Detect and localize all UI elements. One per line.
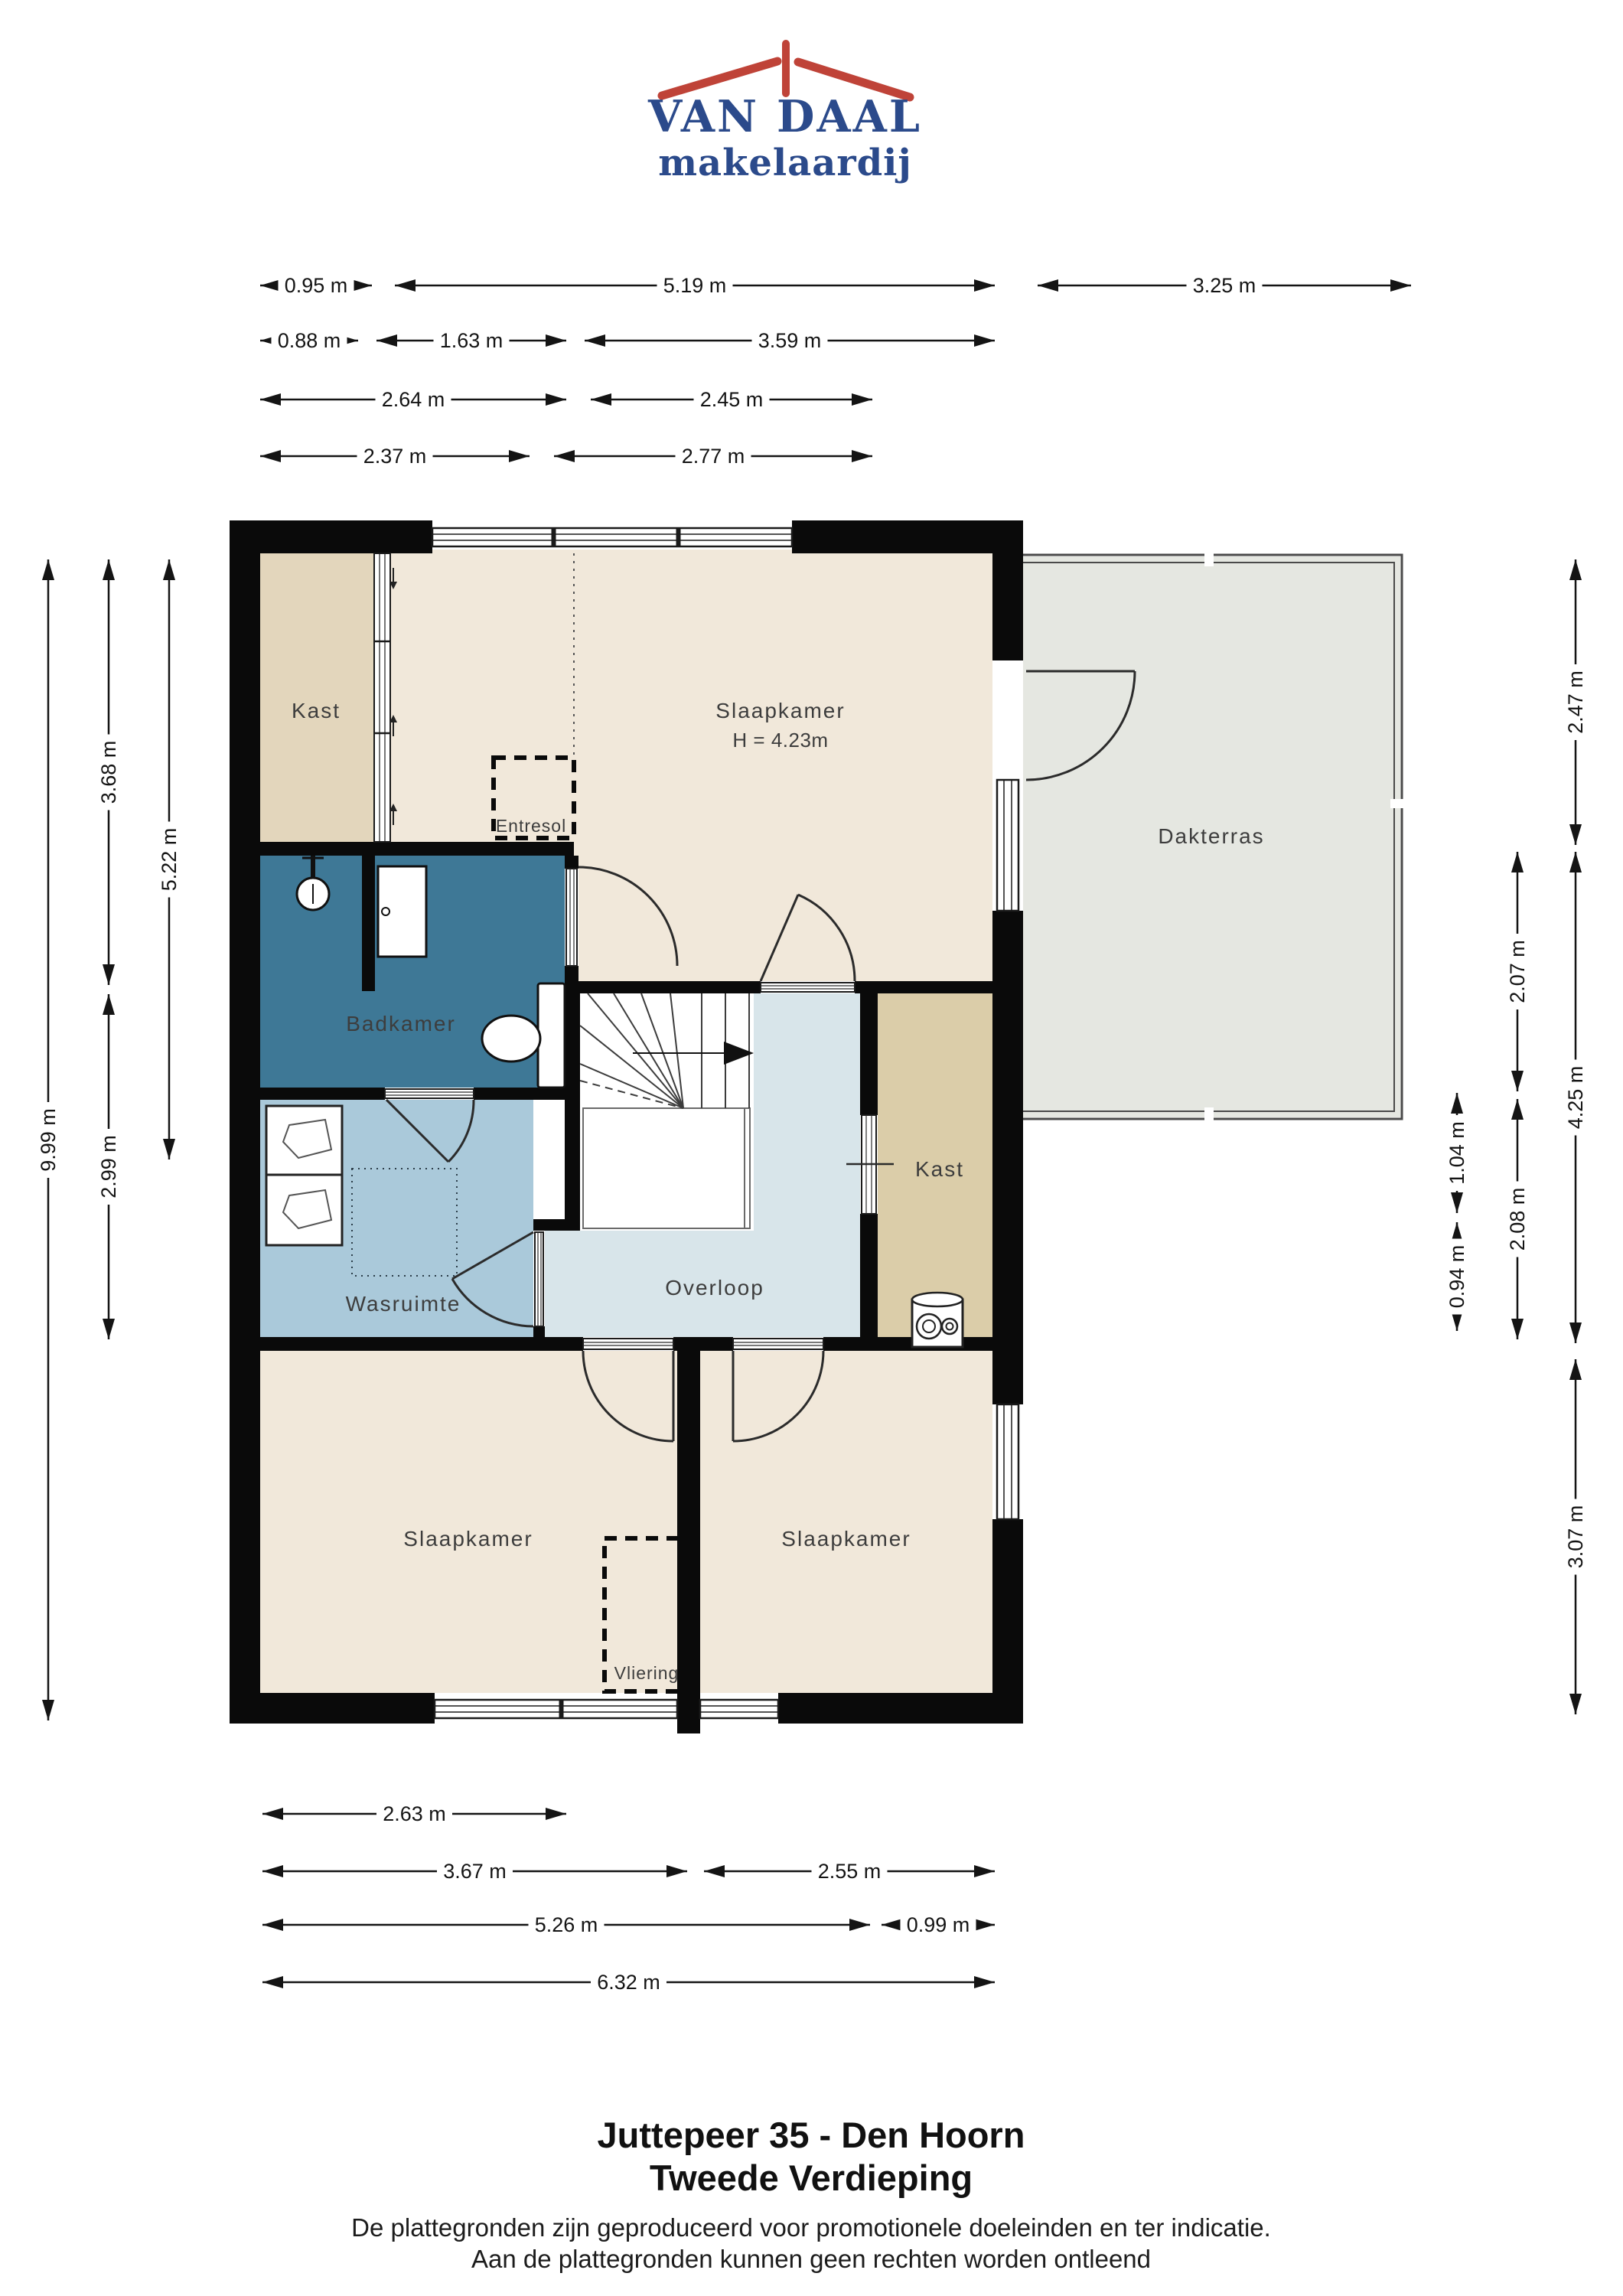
dim-arrow-icon <box>260 450 281 462</box>
dim-label: 1.63 m <box>440 329 504 352</box>
wall-outer-right-3 <box>992 1519 1023 1724</box>
dim-label: 2.55 m <box>818 1860 882 1883</box>
dim-label: 2.63 m <box>383 1802 446 1825</box>
page-title-line2: Tweede Verdieping <box>650 2157 973 2198</box>
wall-badkamer-right-a <box>565 856 578 869</box>
dakterras-wall-break-bottom <box>1204 1107 1214 1123</box>
dim-label: 9.99 m <box>37 1108 60 1172</box>
dim-arrow-icon <box>509 450 530 462</box>
dim-arrow-icon <box>103 559 115 580</box>
dim-arrow-icon <box>1569 1694 1582 1714</box>
dim-label: 5.19 m <box>663 274 727 297</box>
dim-label: 5.22 m <box>158 828 181 892</box>
dim-label: 2.37 m <box>363 445 427 468</box>
dimension: 5.26 m <box>262 1912 870 1938</box>
label-wasruimte: Wasruimte <box>346 1292 461 1316</box>
dimension: 2.99 m <box>96 994 122 1339</box>
dimension: 2.08 m <box>1504 1099 1530 1339</box>
dim-arrow-icon <box>974 334 995 347</box>
dim-arrow-icon <box>1511 1319 1524 1339</box>
window-bottom-right <box>700 1700 778 1718</box>
dim-arrow-icon <box>1569 559 1582 580</box>
label-badkamer: Badkamer <box>346 1012 456 1035</box>
dim-arrow-icon <box>591 393 611 406</box>
logo: VAN DAAL makelaardij <box>647 44 922 184</box>
dim-label: 3.25 m <box>1193 274 1256 297</box>
label-slaapkamer-bottom-right: Slaapkamer <box>781 1527 911 1551</box>
dim-arrow-icon <box>704 1865 725 1877</box>
dim-label: 0.99 m <box>907 1913 970 1936</box>
wall-stairs-left <box>565 993 580 1231</box>
room-slaapkamer-bottom-right <box>700 1351 992 1693</box>
washing-machine-icon <box>266 1106 342 1175</box>
dim-arrow-icon <box>666 1865 687 1877</box>
dim-label: 2.07 m <box>1506 940 1529 1003</box>
wall-hall-bottom-b <box>673 1337 733 1351</box>
dim-arrow-icon <box>1569 824 1582 845</box>
dim-label: 5.26 m <box>535 1913 598 1936</box>
dimension: 2.07 m <box>1504 852 1530 1091</box>
dimension: 0.88 m <box>260 328 358 354</box>
dim-arrow-icon <box>1511 1099 1524 1120</box>
dim-arrow-icon <box>262 1865 283 1877</box>
dimension: 5.19 m <box>395 272 995 298</box>
window-right-dakterras <box>997 780 1018 911</box>
dim-label: 3.59 m <box>758 329 822 352</box>
dim-label: 2.08 m <box>1506 1188 1529 1251</box>
dim-arrow-icon <box>882 1919 902 1931</box>
wall-slaapkamer-bottom-b <box>855 981 992 993</box>
dim-arrow-icon <box>852 450 872 462</box>
disclaimer-line2: Aan de plattegronden kunnen geen rechten… <box>471 2245 1151 2273</box>
dryer-icon <box>266 1175 342 1245</box>
dim-arrow-icon <box>1451 1093 1463 1114</box>
dim-label: 6.32 m <box>597 1971 660 1994</box>
label-kast-top: Kast <box>292 699 341 722</box>
dim-label: 1.04 m <box>1445 1121 1468 1185</box>
dim-label: 2.45 m <box>700 388 764 411</box>
dim-arrow-icon <box>262 1976 283 1988</box>
dim-arrow-icon <box>546 1808 566 1820</box>
stairs-floor <box>580 993 754 1231</box>
glass-partition-kast <box>374 553 390 842</box>
wall-outer-top-left <box>230 520 432 553</box>
logo-brand-text: VAN DAAL <box>647 91 922 142</box>
dim-arrow-icon <box>103 1319 115 1339</box>
wall-outer-bottom-right <box>778 1693 1023 1724</box>
dim-arrow-icon <box>42 559 54 580</box>
dim-arrow-icon <box>974 1976 995 1988</box>
dim-label: 0.94 m <box>1445 1245 1468 1309</box>
dim-label: 4.25 m <box>1564 1066 1587 1130</box>
window-top <box>432 528 792 546</box>
wall-outer-right-1 <box>992 520 1023 671</box>
dimension: 3.67 m <box>262 1858 687 1884</box>
dimension: 5.22 m <box>156 559 182 1159</box>
dim-arrow-icon <box>1038 279 1058 292</box>
dimension: 3.68 m <box>96 559 122 985</box>
dim-label: 3.07 m <box>1564 1505 1587 1569</box>
wall-outer-right-2 <box>992 911 1023 1404</box>
page-title-line1: Juttepeer 35 - Den Hoorn <box>598 2115 1025 2155</box>
label-entresol: Entresol <box>496 816 566 836</box>
dimension: 0.94 m <box>1444 1222 1470 1331</box>
dim-arrow-icon <box>974 279 995 292</box>
label-vliering: Vliering <box>614 1663 680 1683</box>
label-slaapkamer-bottom-left: Slaapkamer <box>403 1527 533 1551</box>
wall-kast-top-bottom <box>230 842 574 856</box>
title-block: Juttepeer 35 - Den Hoorn Tweede Verdiepi… <box>351 2115 1271 2273</box>
dim-arrow-icon <box>1390 279 1411 292</box>
logo-subtitle-text: makelaardij <box>658 142 912 184</box>
dim-arrow-icon <box>395 279 416 292</box>
dim-label: 3.68 m <box>97 741 120 804</box>
dim-label: 0.88 m <box>278 329 341 352</box>
window-right-bedroom <box>997 1404 1018 1519</box>
dimension: 1.63 m <box>376 328 566 354</box>
dim-arrow-icon <box>103 964 115 985</box>
dimension: 2.55 m <box>704 1858 995 1884</box>
wall-wasruimte-stub <box>533 1219 580 1231</box>
label-slaapkamer-main-height: H = 4.23m <box>732 729 828 752</box>
label-overloop: Overloop <box>665 1276 764 1300</box>
dim-arrow-icon <box>1451 1192 1463 1213</box>
dimension: 2.64 m <box>260 386 566 413</box>
dim-label: 3.67 m <box>443 1860 507 1883</box>
dim-arrow-icon <box>554 450 575 462</box>
dimension: 6.32 m <box>262 1969 995 1995</box>
dim-arrow-icon <box>351 279 372 292</box>
dim-label: 2.99 m <box>97 1135 120 1199</box>
dim-arrow-icon <box>163 1139 175 1159</box>
dakterras-wall-break-right <box>1390 799 1406 808</box>
wall-kast-mid-left-a <box>860 993 878 1115</box>
wall-outer-bottom-left <box>230 1693 435 1724</box>
wall-hall-bottom-a <box>230 1337 583 1351</box>
dimension: 3.59 m <box>585 328 995 354</box>
dimension: 2.77 m <box>554 443 872 469</box>
dim-arrow-icon <box>546 334 566 347</box>
boiler-icon <box>912 1293 963 1347</box>
dim-arrow-icon <box>103 994 115 1015</box>
dim-arrow-icon <box>262 1808 283 1820</box>
dimension: 1.04 m <box>1444 1093 1470 1213</box>
wall-badkamer-bottom-b <box>474 1088 566 1100</box>
dimension: 2.63 m <box>262 1801 566 1827</box>
dim-arrow-icon <box>1569 852 1582 872</box>
window-bottom-left <box>435 1700 677 1718</box>
dakterras-wall-break-top <box>1204 551 1214 566</box>
dim-label: 2.47 m <box>1564 670 1587 734</box>
dimension: 2.45 m <box>591 386 872 413</box>
dim-arrow-icon <box>546 393 566 406</box>
closet-panel-icon <box>378 866 426 957</box>
dimension: 0.99 m <box>882 1912 995 1938</box>
dim-label: 0.95 m <box>285 274 348 297</box>
dimension: 2.47 m <box>1563 559 1589 845</box>
wall-badkamer-stub <box>362 856 375 991</box>
dim-arrow-icon <box>1569 1322 1582 1343</box>
disclaimer-line1: De plattegronden zijn geproduceerd voor … <box>351 2213 1271 2242</box>
dim-label: 2.77 m <box>682 445 745 468</box>
dimension: 4.25 m <box>1563 852 1589 1343</box>
wall-outer-left <box>230 520 260 1724</box>
wall-kast-mid-left-b <box>860 1214 878 1337</box>
dim-arrow-icon <box>849 1919 870 1931</box>
wall-outer-top-right <box>792 520 1023 553</box>
dim-label: 2.64 m <box>382 388 445 411</box>
dim-arrow-icon <box>1569 1359 1582 1380</box>
dim-arrow-icon <box>42 1700 54 1720</box>
dimension: 0.95 m <box>260 272 372 298</box>
room-kast-top <box>260 550 376 842</box>
dim-arrow-icon <box>852 393 872 406</box>
label-kast-mid: Kast <box>915 1157 964 1181</box>
dimension: 2.37 m <box>260 443 530 469</box>
floorplan-page: VAN DAAL makelaardij <box>0 0 1623 2296</box>
dimension: 3.25 m <box>1038 272 1411 298</box>
floorplan-canvas: VAN DAAL makelaardij <box>0 0 1623 2296</box>
room-slaapkamer-bottom-left <box>260 1351 677 1693</box>
wall-badkamer-bottom-a <box>230 1088 385 1100</box>
dim-arrow-icon <box>376 334 397 347</box>
label-dakterras: Dakterras <box>1158 824 1264 848</box>
dim-arrow-icon <box>585 334 605 347</box>
dimension: 3.07 m <box>1563 1359 1589 1714</box>
dim-arrow-icon <box>163 559 175 580</box>
dim-arrow-icon <box>262 1919 283 1931</box>
dim-arrow-icon <box>974 1919 995 1931</box>
dim-arrow-icon <box>1511 1071 1524 1091</box>
dim-arrow-icon <box>974 1865 995 1877</box>
dim-arrow-icon <box>1511 852 1524 872</box>
dim-arrow-icon <box>260 279 281 292</box>
wall-slaapkamer-bottom-a <box>565 981 761 993</box>
wall-hall-bottom-c <box>823 1337 992 1351</box>
label-slaapkamer-main: Slaapkamer <box>715 699 845 722</box>
dimension: 9.99 m <box>35 559 61 1720</box>
dim-arrow-icon <box>260 393 281 406</box>
